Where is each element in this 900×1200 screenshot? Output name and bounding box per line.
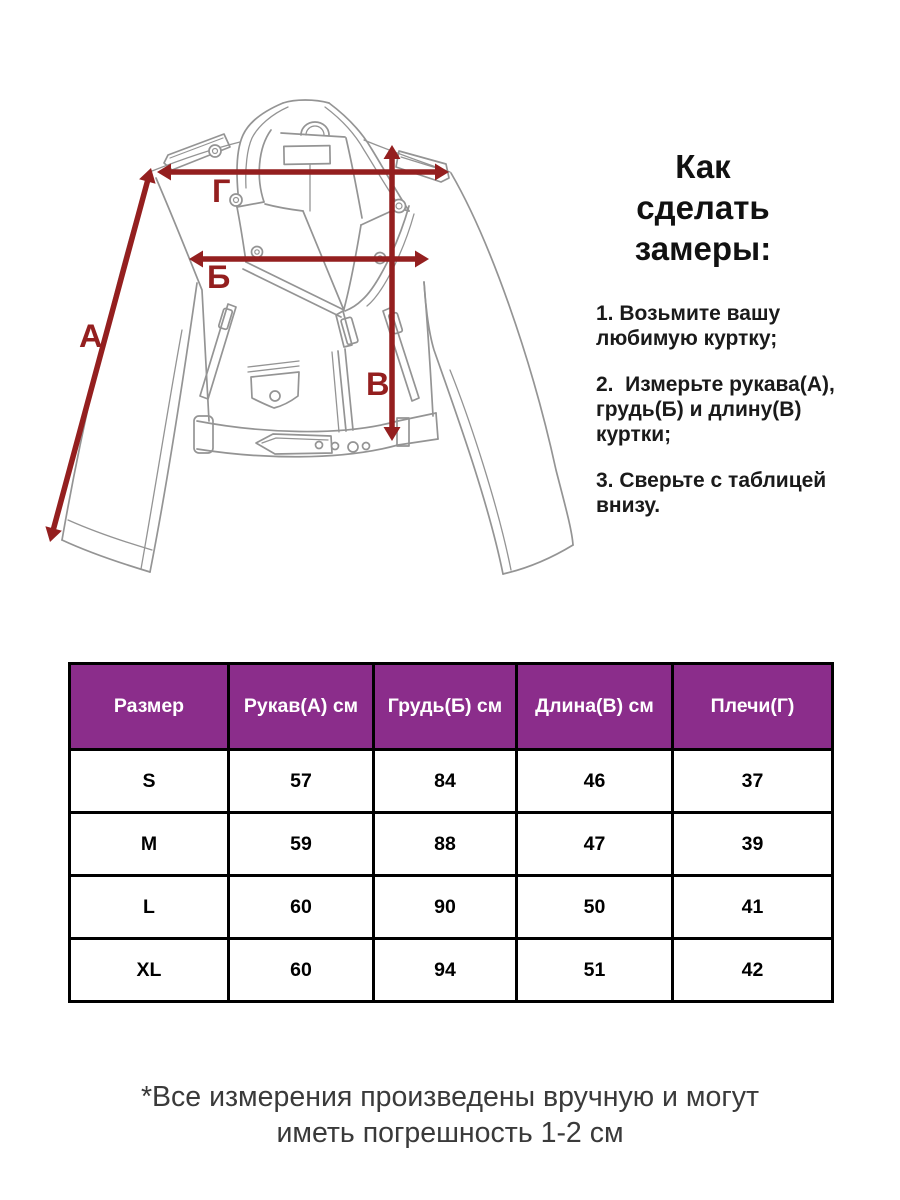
svg-text:Г: Г <box>212 173 230 209</box>
svg-text:В: В <box>366 366 389 402</box>
svg-text:Б: Б <box>207 259 230 295</box>
svg-text:А: А <box>79 318 102 354</box>
